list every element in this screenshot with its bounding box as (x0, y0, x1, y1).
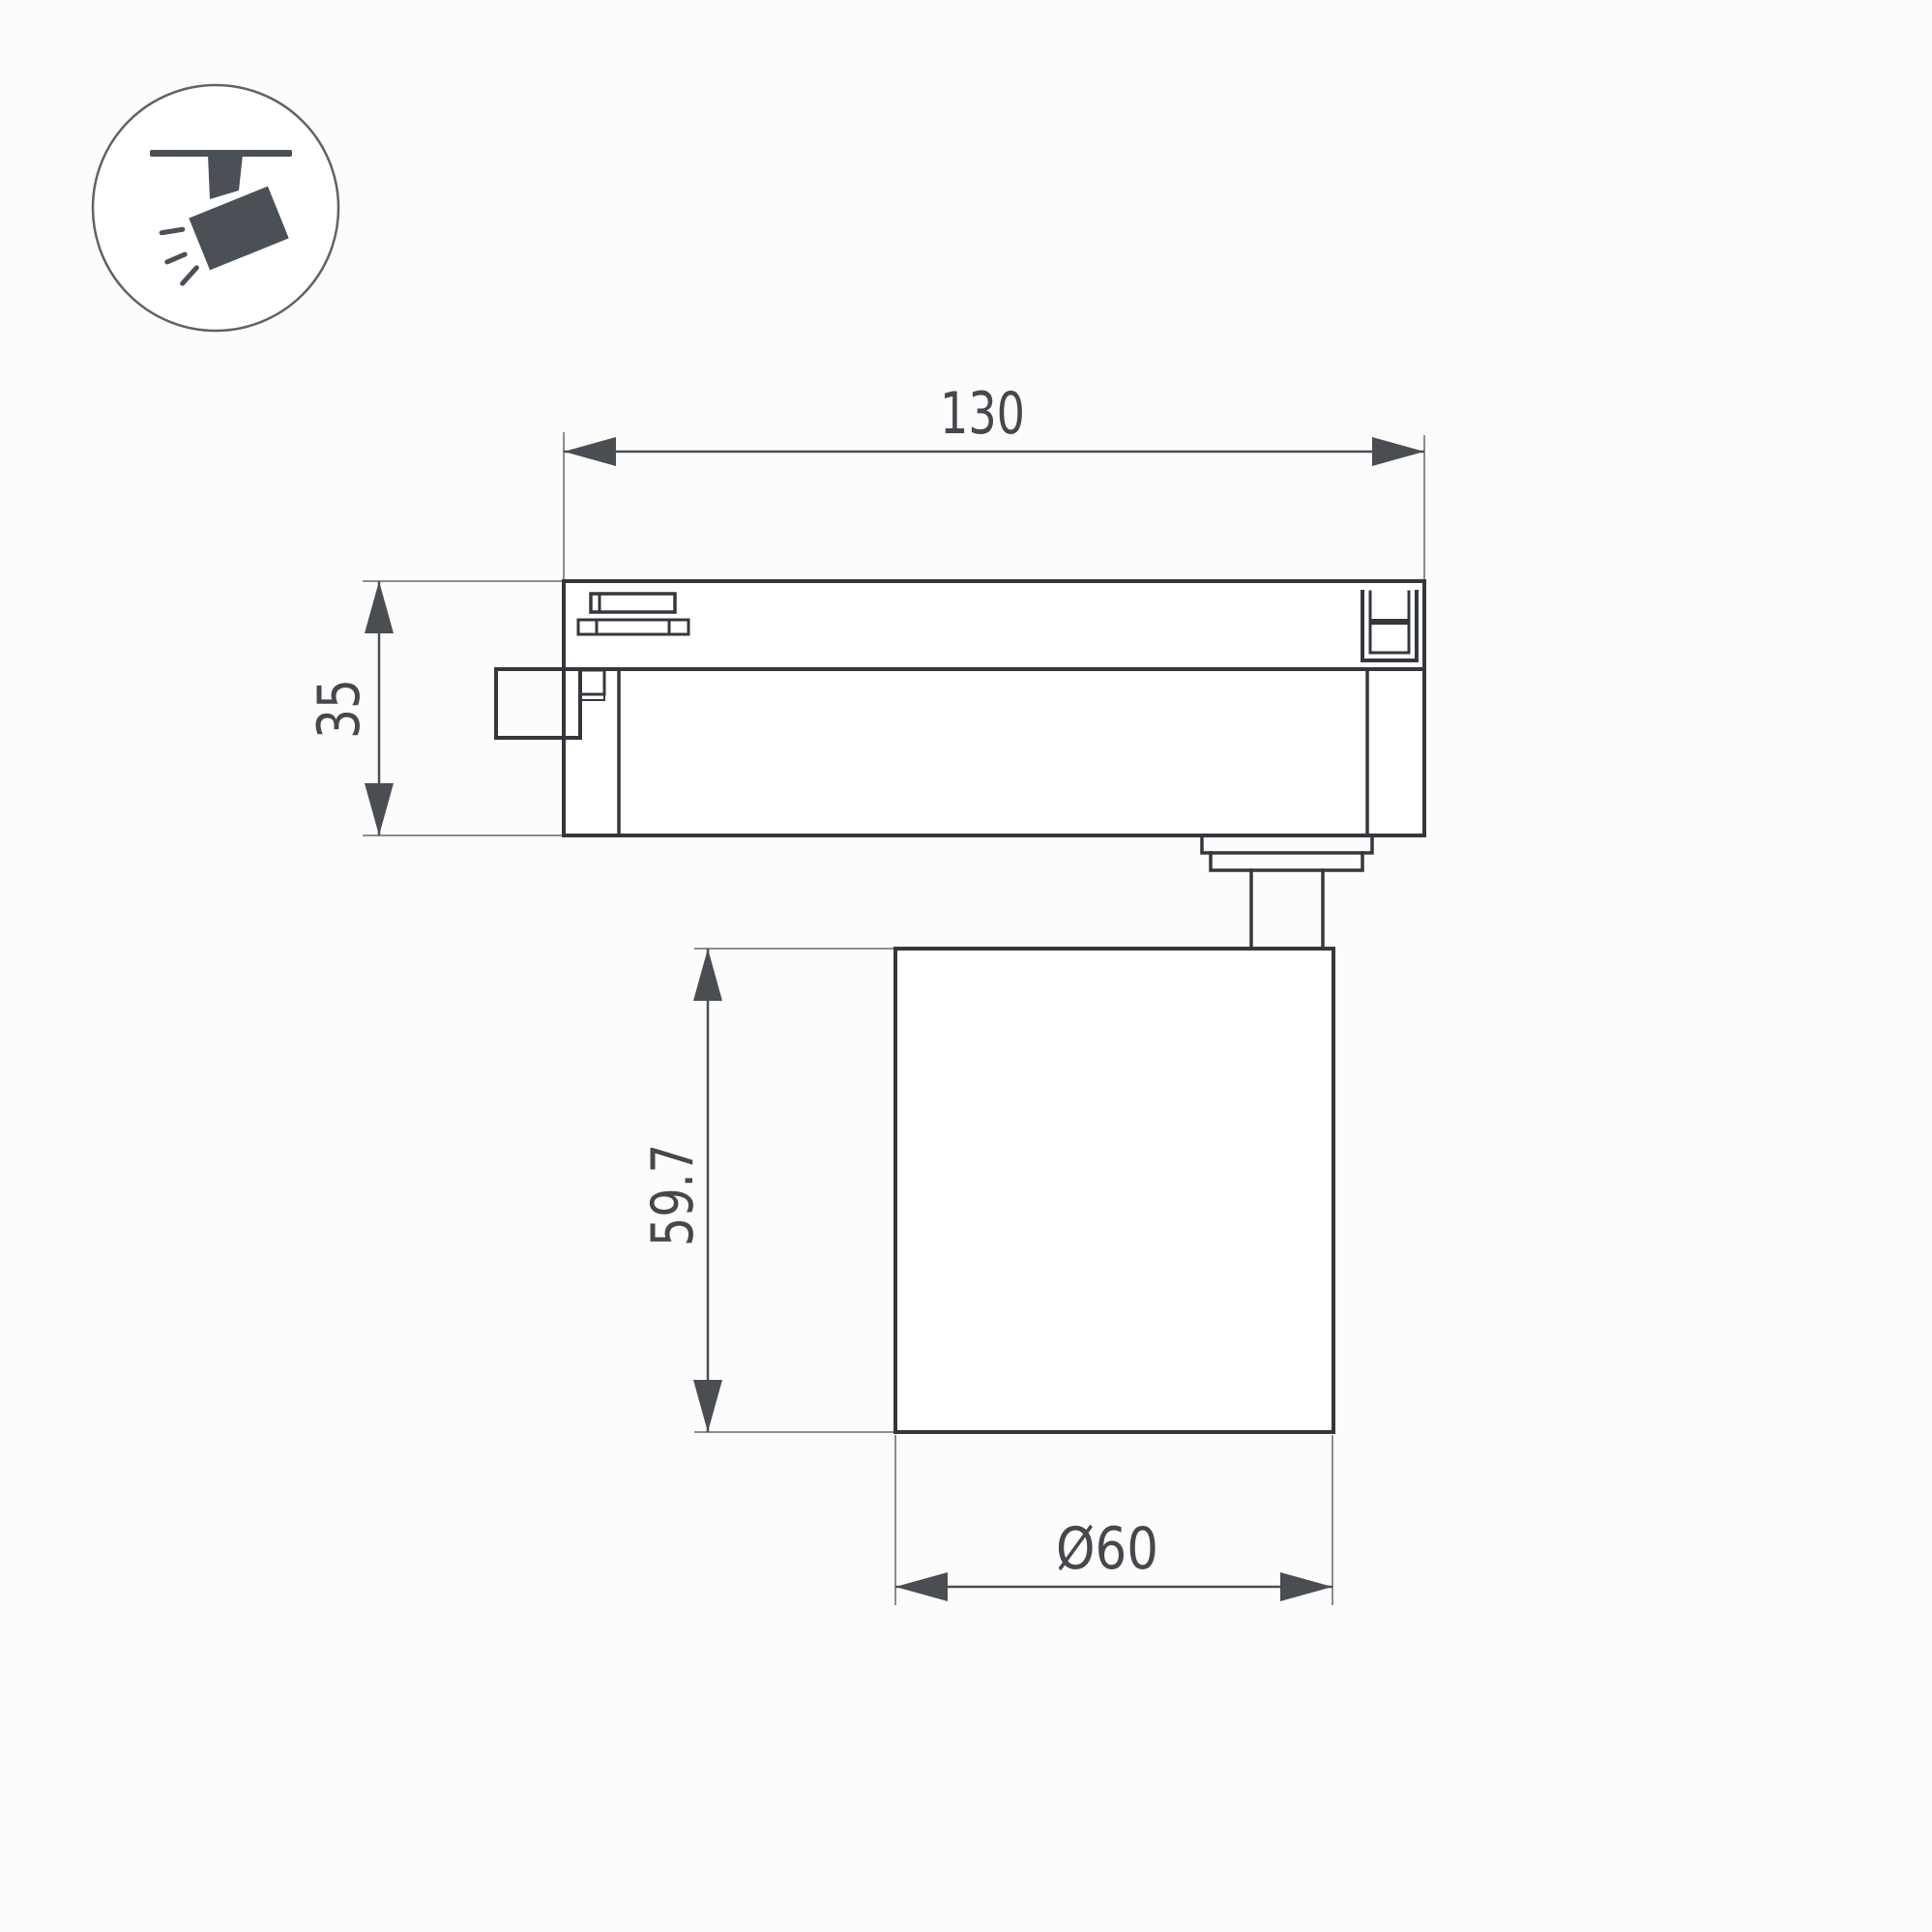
lamp-body (895, 949, 1333, 1432)
arrow-down-icon (693, 1380, 722, 1432)
arrow-up-icon (693, 949, 722, 1001)
drawing-page: 130 35 59.7 Ø60 (0, 0, 1932, 1932)
swivel-plate-upper (1202, 835, 1372, 853)
dimension-label-body-diameter: Ø60 (1056, 1515, 1158, 1583)
arrow-right-icon (1372, 437, 1424, 466)
lamp-body-outline (895, 949, 1333, 1432)
dimension-label-adapter-height: 35 (306, 679, 373, 739)
track-adapter (496, 581, 1424, 835)
arrow-left-icon (895, 1572, 948, 1601)
spotlight-icon-badge (93, 85, 338, 331)
arrow-left-icon (564, 437, 616, 466)
swivel-stem (1251, 870, 1323, 949)
swivel-joint (1202, 835, 1372, 949)
swivel-plate-lower (1211, 853, 1362, 870)
adapter-housing-outline (564, 581, 1424, 835)
arrow-up-icon (365, 581, 394, 633)
arrow-right-icon (1280, 1572, 1332, 1601)
dimension-label-track-width: 130 (940, 380, 1025, 448)
arrow-down-icon (365, 783, 394, 835)
technical-drawing: 130 35 59.7 Ø60 (0, 0, 1932, 1932)
dimension-label-body-height: 59.7 (639, 1144, 707, 1246)
